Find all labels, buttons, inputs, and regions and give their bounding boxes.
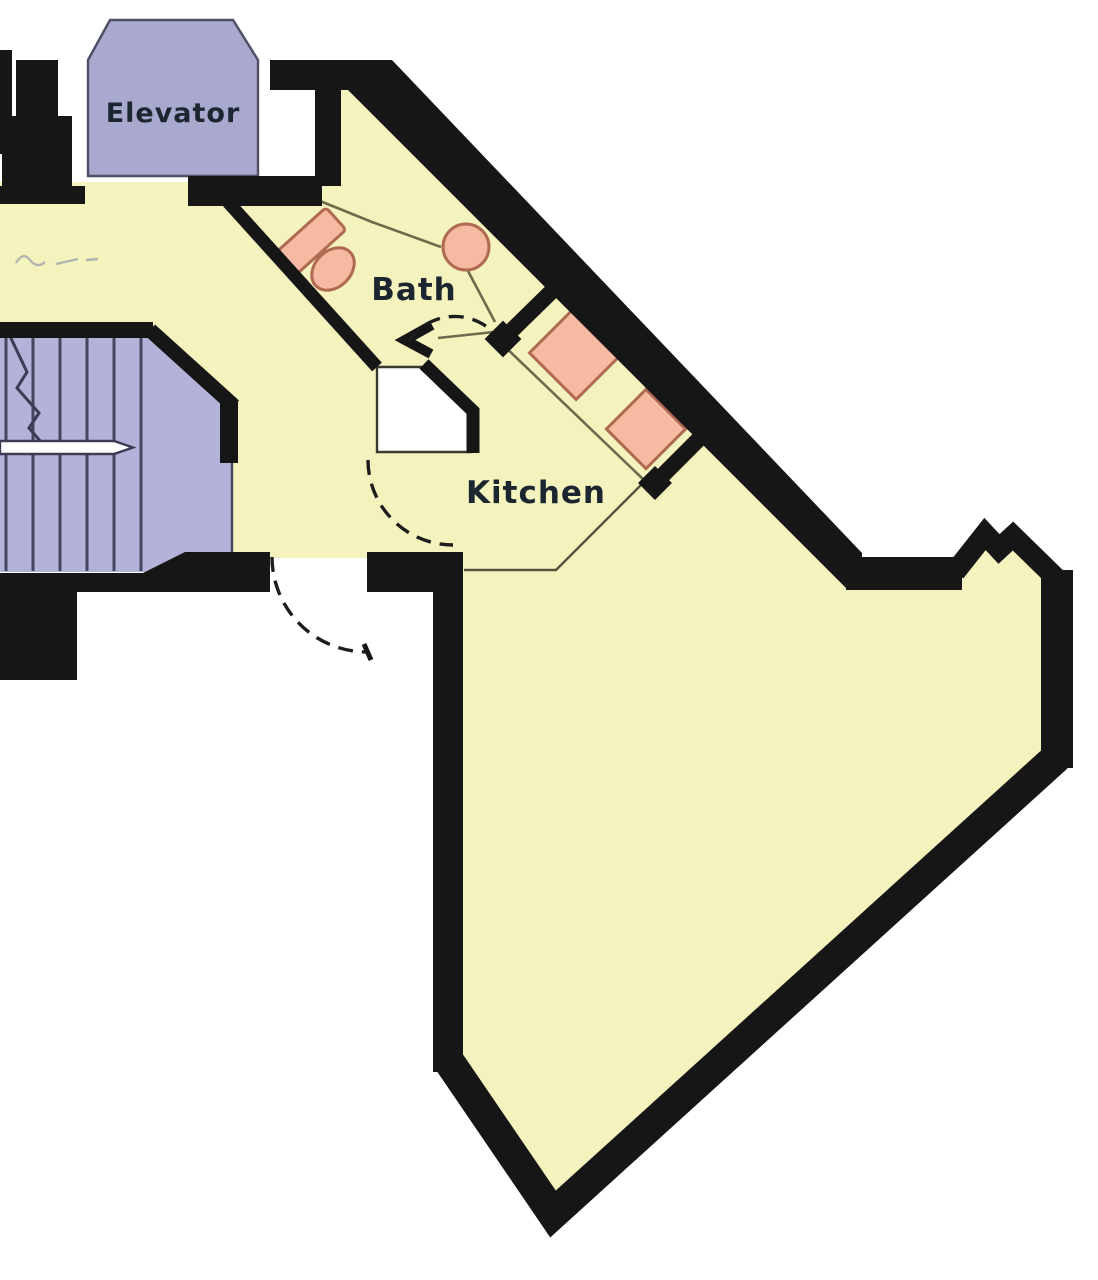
floor-plan-page: Elevator Bath Kitchen (0, 0, 1098, 1280)
bath-label: Bath (371, 272, 456, 308)
wall-column-top (16, 60, 58, 120)
wash-basin (443, 224, 489, 270)
wall-column-base (0, 186, 85, 204)
wall-livingroom-left (433, 590, 463, 1072)
elevator-label: Elevator (106, 98, 241, 129)
wall-corridor-left-bar (220, 402, 238, 463)
elevator: Elevator (88, 20, 258, 176)
wall-notch-horizontal (846, 557, 962, 590)
entry-door-swing (272, 557, 367, 652)
wall-elevator-right-bar (315, 84, 341, 186)
wall-stairs-top (0, 322, 153, 338)
wall-entry-right (367, 552, 463, 592)
floor-plan-svg: Elevator Bath Kitchen (0, 0, 1098, 1280)
wall-right-vertical (1041, 570, 1073, 768)
handrail (0, 441, 133, 454)
wall-column-mid (2, 116, 72, 189)
entry-door-leaf (364, 644, 371, 660)
wall-elevator-bottom-bar (188, 176, 322, 206)
kitchen-label: Kitchen (466, 475, 606, 511)
